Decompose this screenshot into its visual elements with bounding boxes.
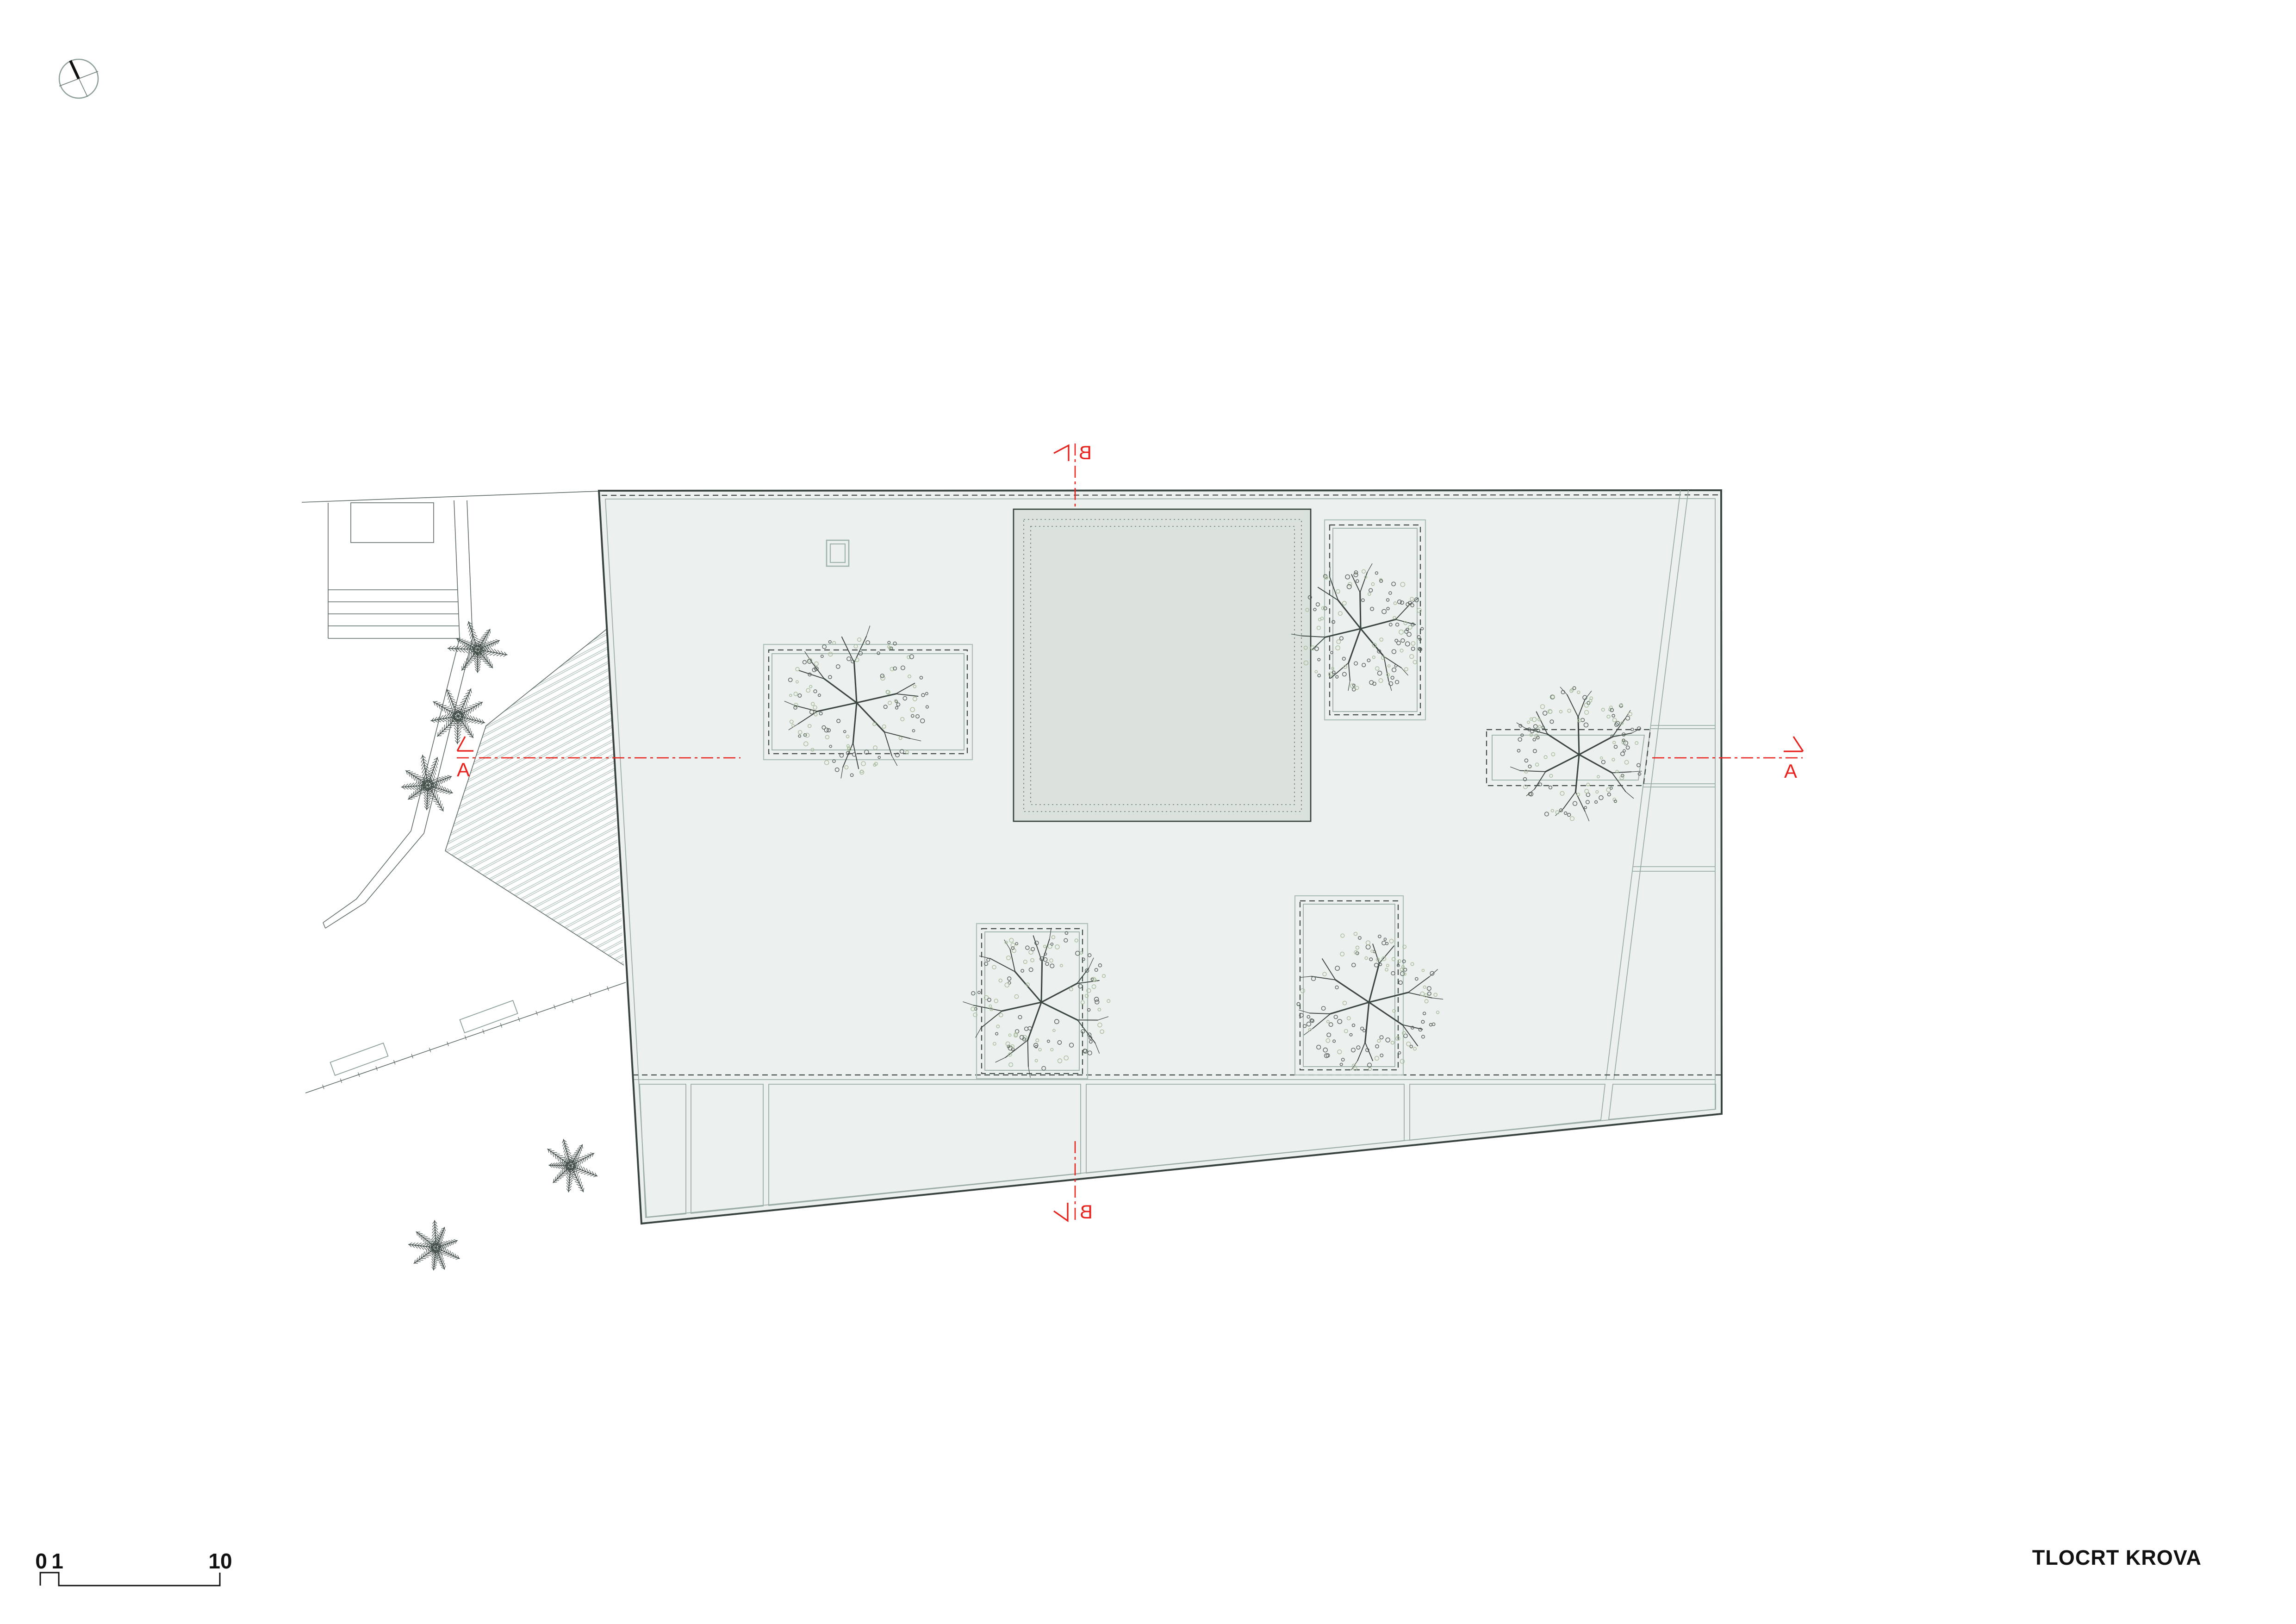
section-label-b: B: [1079, 442, 1092, 463]
site-tree: [548, 1139, 597, 1192]
scale-ten: 10: [208, 1549, 232, 1573]
drawing-title: TLOCRT KROVA: [2032, 1546, 2202, 1569]
section-label-a: A: [457, 759, 470, 781]
section-label-b: B: [1080, 1201, 1093, 1223]
skylight: [1014, 509, 1311, 821]
site-tree: [448, 622, 507, 673]
site-tree: [402, 755, 453, 811]
section-label-a: A: [1784, 760, 1797, 782]
drawing-sheet: A A B B 0 1 10 TLOCRT KROVA: [0, 0, 2296, 1624]
scale-one: 1: [51, 1549, 63, 1573]
roof-plan-drawing: A A B B 0 1 10 TLOCRT KROVA: [0, 0, 2296, 1624]
boundary-ticks: [323, 987, 609, 1089]
site-hatch-area: [445, 629, 624, 965]
building-roof: [599, 490, 1722, 1224]
site-tree: [409, 1220, 460, 1270]
scale-zero: 0: [35, 1549, 47, 1573]
parapet-dashed-line: [602, 495, 1718, 495]
north-arrow-icon: [59, 59, 98, 98]
site-stairs: [328, 590, 460, 638]
site-bench: [330, 1043, 388, 1075]
site-bench: [460, 1000, 518, 1033]
site-boundary: [305, 982, 626, 1093]
scale-bar: 0 1 10: [35, 1549, 232, 1586]
site-context: [302, 491, 626, 1270]
neighbor-building: [351, 503, 434, 543]
